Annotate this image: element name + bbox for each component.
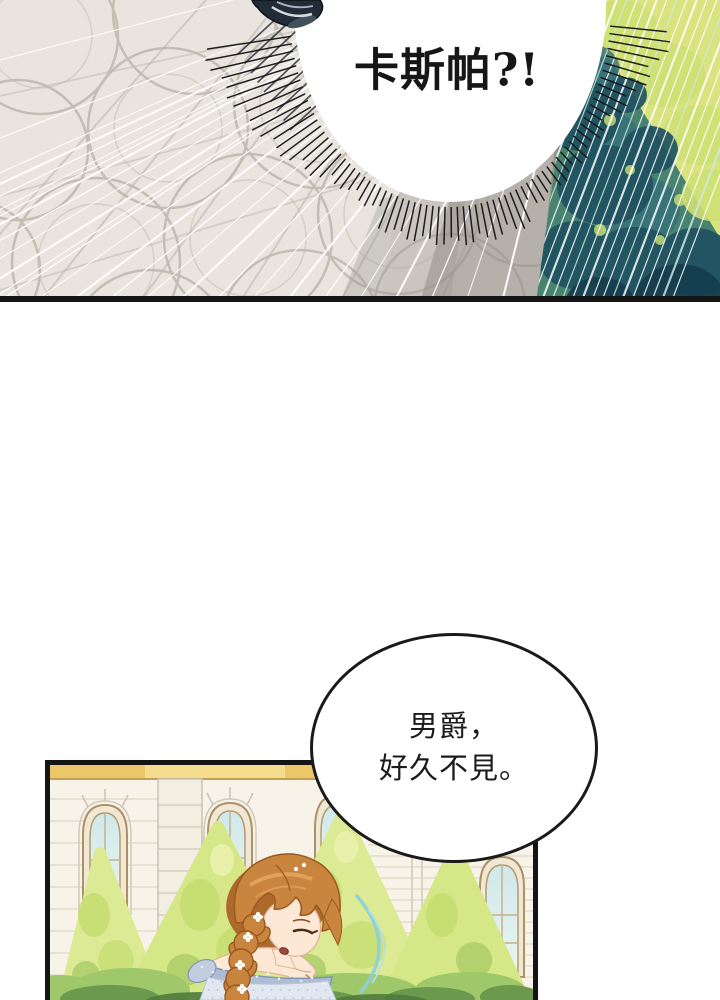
- shout-bubble-text: 卡斯帕?!: [354, 44, 540, 97]
- panel1-border: [0, 296, 720, 302]
- panel1-art: 卡斯帕?!: [0, 0, 720, 302]
- panel-courtyard: 卡斯帕?!: [0, 0, 720, 302]
- speech-line-1: 男爵，: [409, 706, 499, 748]
- speech-bubble-greeting: 男爵， 好久不見。: [310, 633, 598, 863]
- comic-page: 卡斯帕?!: [0, 0, 720, 1000]
- speech-line-2: 好久不見。: [379, 748, 529, 790]
